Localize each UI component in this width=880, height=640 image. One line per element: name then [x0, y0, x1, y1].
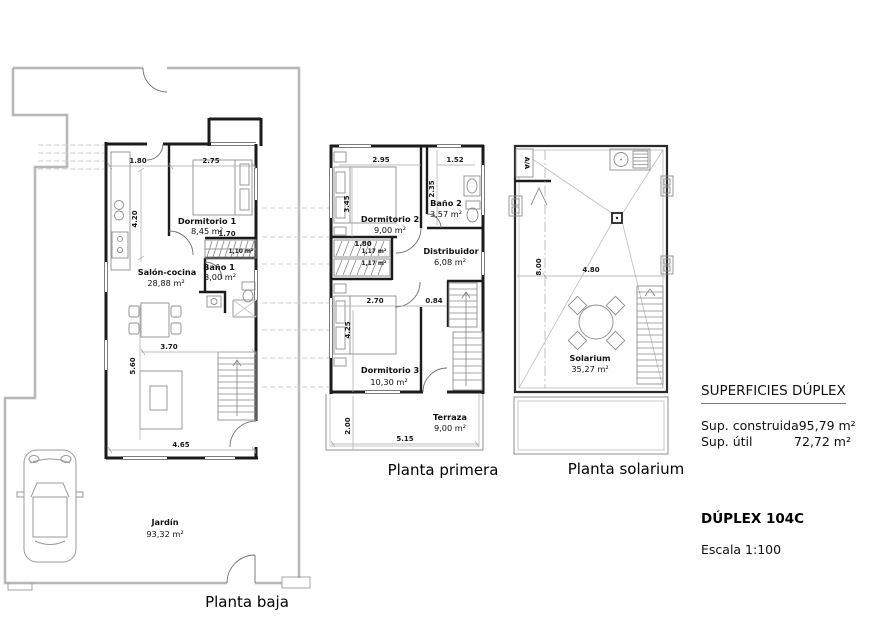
room-label-terraza: Terraza: [433, 412, 467, 422]
plan-title-baja: Planta baja: [205, 593, 289, 611]
dim-label: 2.95: [372, 156, 389, 164]
room-label-dormitorio2: Dormitorio 2: [361, 214, 419, 224]
room-area-bano1: 3,00 m²: [204, 272, 236, 282]
dim-label: 4.20: [131, 210, 139, 227]
ac-unit: A/A: [515, 149, 551, 205]
surface-label: Sup. útil: [701, 434, 753, 450]
dim-label: 2.35: [428, 180, 436, 197]
stair-flight-label: 1,17 m²: [362, 260, 387, 267]
floor1-interior-walls: [331, 145, 484, 392]
dim-label: 5.15: [396, 435, 413, 443]
living-staircase: [218, 352, 256, 420]
bath2-fixtures: [464, 176, 480, 222]
room-label-dormitorio1: Dormitorio 1: [178, 216, 237, 226]
surface-value: 95,79 m²: [799, 418, 856, 434]
surface-row-util: Sup. útil 72,72 m²: [701, 434, 851, 450]
room-label-salon: Salón-cocina: [138, 267, 197, 277]
surfaces-rows: Sup. construida 95,79 m² Sup. útil 72,72…: [701, 418, 851, 450]
room-area-bano2: 3,57 m²: [430, 209, 462, 219]
room-label-bano1: Baño 1: [203, 262, 235, 272]
stair-area-label: 1,10 m²: [229, 248, 254, 255]
dim-label: 4.80: [582, 266, 599, 274]
floorplan-sheet: 1.80 2.75 4.20 1.70 3.70 5.60 4.65 1,10 …: [0, 0, 880, 640]
upper-terrace-walls: [209, 118, 261, 146]
ac-label: A/A: [523, 157, 531, 169]
kitchen-counter: [111, 152, 130, 270]
floor1-staircase: [449, 283, 482, 390]
room-area-terraza: 9,00 m²: [434, 423, 466, 433]
room-area-dormitorio3: 10,30 m²: [370, 377, 407, 387]
planta-solarium-drawing: A/A 8.00 4.80: [503, 135, 685, 485]
room-area-dormitorio2: 9,00 m²: [374, 225, 406, 235]
dim-label: 5.60: [129, 357, 137, 374]
room-label-distribuidor: Distribuidor: [423, 246, 479, 256]
dim-label: 3.45: [343, 195, 351, 212]
surface-value: 72,72 m²: [794, 434, 851, 450]
surfaces-panel: SUPERFICIES DÚPLEX Sup. construida 95,79…: [701, 380, 861, 450]
dim-label: 4.25: [344, 321, 352, 338]
dim-label: 0.84: [425, 297, 442, 305]
bed-dormitorio1: [193, 160, 252, 215]
room-area-distribuidor: 6,08 m²: [434, 257, 466, 267]
room-label-dormitorio3: Dormitorio 3: [361, 365, 420, 375]
planta-baja-drawing: 1.80 2.75 4.20 1.70 3.70 5.60 4.65 1,10 …: [0, 55, 330, 615]
dim-label: 4.65: [172, 441, 189, 449]
dim-label: 2.00: [344, 417, 352, 434]
dim-label: 1.52: [446, 156, 463, 164]
scale-label: Escala 1:100: [701, 542, 781, 557]
bath1-fixtures: [207, 282, 256, 317]
solarium-table-set: [568, 296, 624, 349]
dining-set: [129, 303, 181, 337]
room-area-solarium: 35,27 m²: [571, 364, 608, 374]
plan-title-primera: Planta primera: [388, 461, 499, 479]
dim-label: 8.00: [535, 258, 543, 275]
floor1-dimension-lines: [331, 150, 479, 450]
sofa: [140, 371, 182, 429]
dim-label: 2.70: [366, 297, 383, 305]
room-label-jardin: Jardín: [150, 517, 178, 527]
room-area-jardin: 93,32 m²: [146, 529, 183, 539]
room-area-dormitorio1: 8,45 m²: [191, 226, 223, 236]
room-area-salon: 28,88 m²: [147, 278, 184, 288]
dim-label: 2.75: [202, 157, 219, 165]
room-label-solarium: Solarium: [569, 353, 610, 363]
plan-title-solarium: Planta solarium: [568, 460, 685, 478]
garden-boundary: [5, 68, 310, 590]
house-walls: [105, 118, 262, 460]
dim-label: 1.80: [129, 157, 146, 165]
alignment-guides: [38, 145, 329, 387]
rear-gate-arc: [227, 555, 255, 583]
stair-flight-label: 1,17 m²: [362, 248, 387, 255]
dim-label: 1.80: [354, 240, 371, 248]
solar-water-heater: [610, 149, 650, 170]
unit-name: DÚPLEX 104C: [701, 511, 804, 527]
entrance-gate-arc: [143, 68, 167, 92]
dim-label: 3.70: [160, 343, 177, 351]
planta-primera-drawing: 2.95 1.52 3.45 2.35 1.80 1,17 m² 1,17 m²…: [318, 135, 502, 485]
lower-roof-outline: [514, 397, 668, 454]
car-top-view: [17, 450, 83, 562]
room-label-bano2: Baño 2: [430, 198, 462, 208]
surfaces-heading: SUPERFICIES DÚPLEX: [701, 383, 846, 404]
surface-row-construida: Sup. construida 95,79 m²: [701, 418, 851, 434]
solarium-staircase: [637, 286, 663, 384]
surface-label: Sup. construida: [701, 418, 799, 434]
